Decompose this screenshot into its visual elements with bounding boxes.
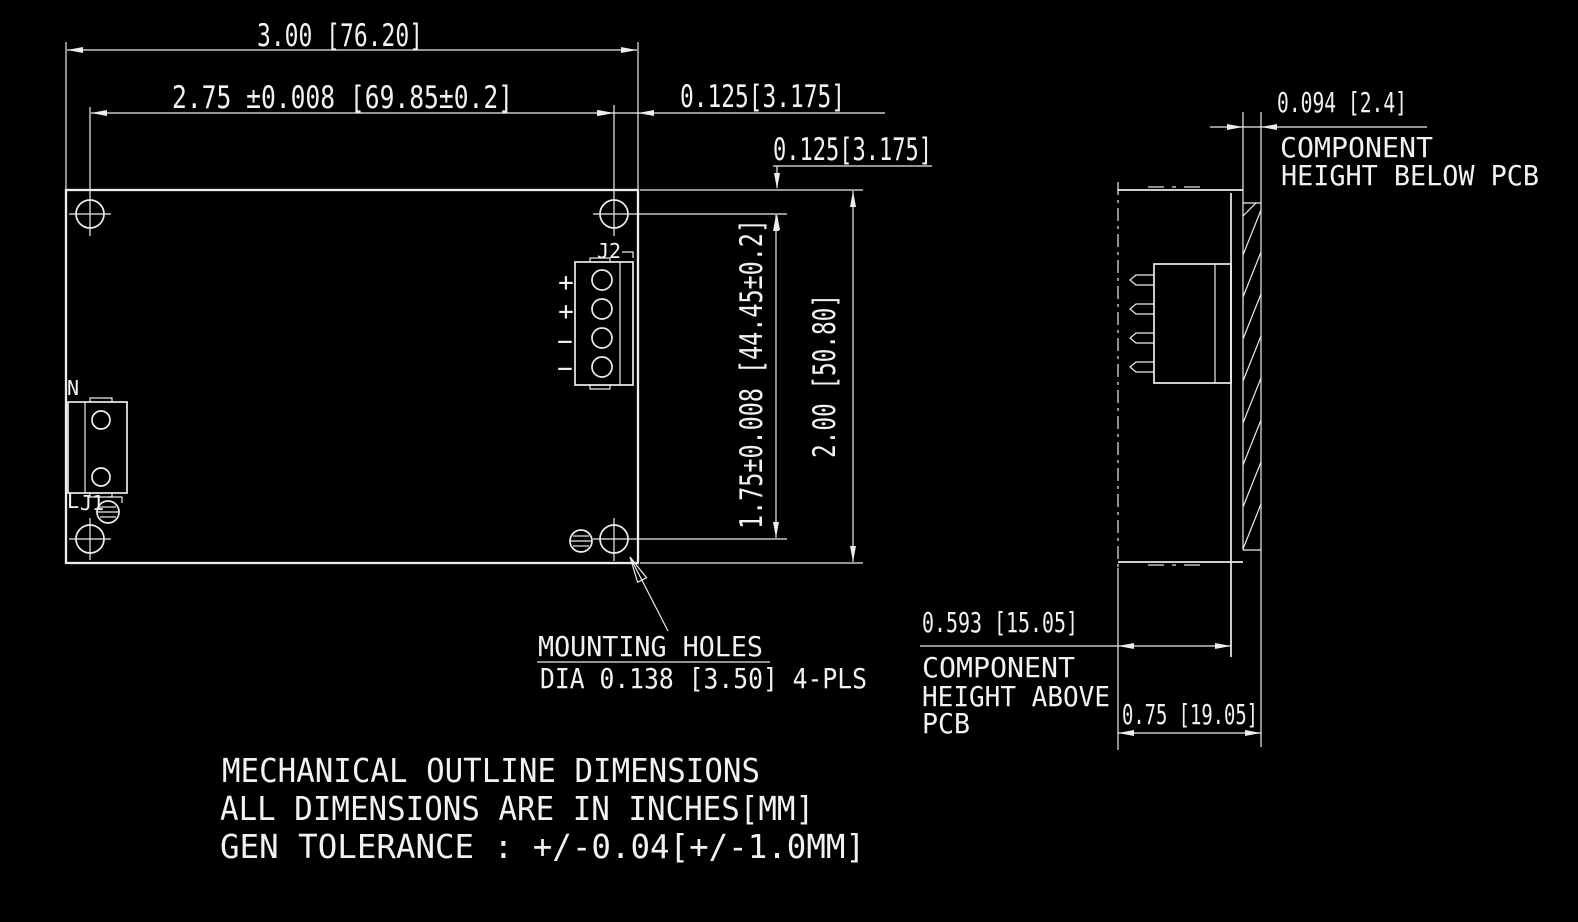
dim-edge-offset-right: 0.125[3.175] xyxy=(680,79,845,115)
mounting-hole-top-right xyxy=(600,105,628,236)
top-view: N L J1 J2 + + − − xyxy=(66,105,638,563)
label-component-below-2: HEIGHT BELOW PCB xyxy=(1281,159,1539,192)
dim-overall-height: 2.00 [50.80] xyxy=(807,294,843,458)
top-view-dimensions: 3.00 [76.20] 2.75 ±0.008 [69.85±0.2] 0.1… xyxy=(66,18,932,695)
dim-overall-depth: 0.75 [19.05] xyxy=(1122,698,1258,731)
dim-hole-span-horizontal: 2.75 ±0.008 [69.85±0.2] xyxy=(172,80,513,116)
pcb-board-outline xyxy=(66,190,638,563)
connector-j2 xyxy=(575,252,633,389)
mounting-hole-top-left xyxy=(69,107,111,236)
mounting-holes-note-line1: MOUNTING HOLES xyxy=(538,630,763,663)
note-line-3: GEN TOLERANCE : +/-0.04[+/-1.0MM] xyxy=(220,827,865,866)
terminal-polarity-plus-1: + xyxy=(558,268,574,298)
note-line-1: MECHANICAL OUTLINE DIMENSIONS xyxy=(222,751,760,790)
connector-j1 xyxy=(68,398,127,503)
side-connector xyxy=(1130,264,1231,383)
dim-overall-width: 3.00 [76.20] xyxy=(257,18,423,54)
mounting-holes-note-line2: DIA 0.138 [3.50] 4-PLS xyxy=(540,662,867,695)
note-line-2: ALL DIMENSIONS ARE IN INCHES[MM] xyxy=(220,789,814,828)
connector-label-j2: J2 xyxy=(597,239,621,263)
dim-edge-offset-top: 0.125[3.175] xyxy=(773,132,932,168)
dim-hole-span-vertical: 1.75±0.008 [44.45±0.2] xyxy=(734,219,770,529)
mechanical-outline-drawing: N L J1 J2 + + − − 3.00 xyxy=(0,0,1578,922)
terminal-polarity-plus-2: + xyxy=(558,297,574,327)
connector-label-j1: J1 xyxy=(80,491,104,515)
side-view-dimensions: 0.094 [2.4] COMPONENT HEIGHT BELOW PCB 0… xyxy=(920,86,1539,740)
terminal-polarity-minus-2: − xyxy=(557,354,573,384)
dim-component-height-below-pcb: 0.094 [2.4] xyxy=(1277,86,1407,119)
dim-component-height-above-pcb: 0.593 [15.05] xyxy=(922,606,1078,639)
drawing-canvas: N L J1 J2 + + − − 3.00 xyxy=(0,0,1578,922)
terminal-polarity-minus-1: − xyxy=(557,327,573,357)
terminal-label-n: N xyxy=(67,376,79,400)
pcb-hatch xyxy=(1243,203,1261,550)
mounting-hole-bottom-left xyxy=(69,518,111,560)
terminal-label-l: L xyxy=(67,489,79,513)
label-component-above-3: PCB xyxy=(922,707,970,740)
screw-bottom-right xyxy=(570,530,592,552)
side-view xyxy=(1118,112,1261,750)
general-notes: MECHANICAL OUTLINE DIMENSIONS ALL DIMENS… xyxy=(220,751,865,866)
